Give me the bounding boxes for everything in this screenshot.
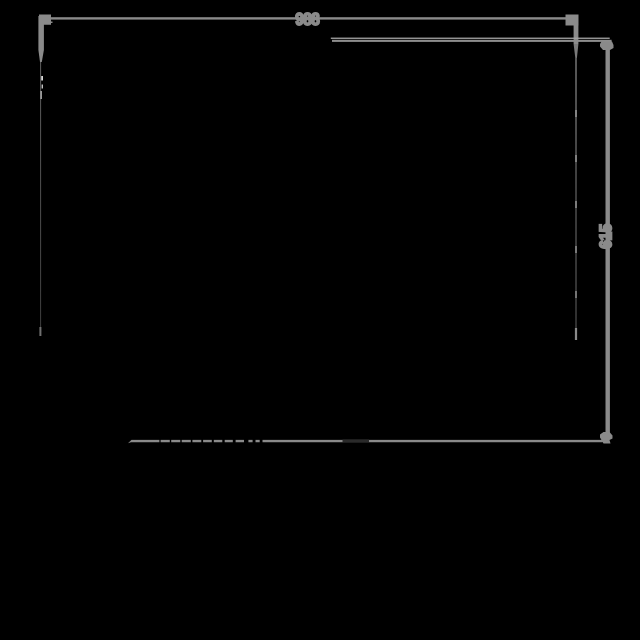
svg-text:988: 988 bbox=[295, 9, 319, 29]
svg-text:615: 615 bbox=[596, 224, 616, 249]
